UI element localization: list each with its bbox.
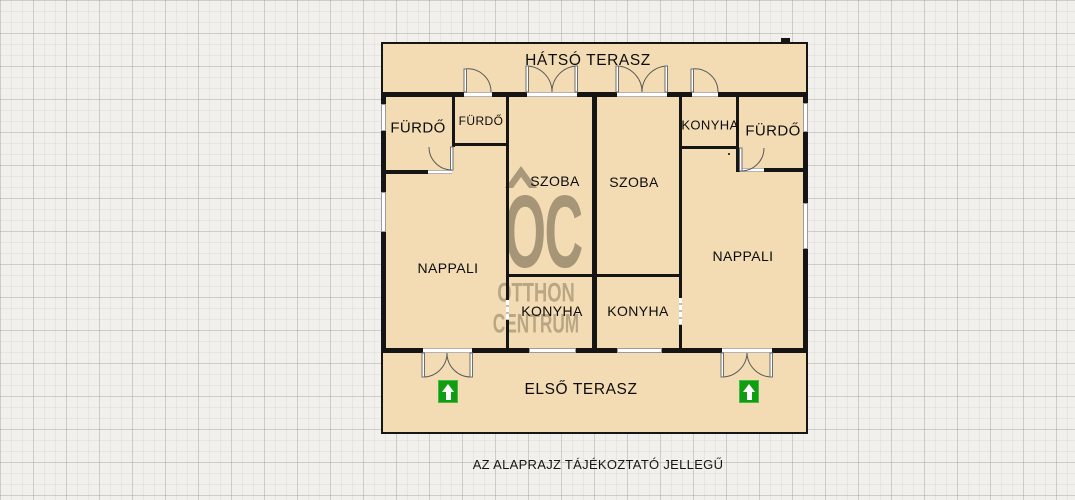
label-living-room-left: NAPPALI xyxy=(418,260,479,276)
entrance-arrow-icon-left xyxy=(438,380,458,403)
floorplan: OC OTTHON CENTRUM xyxy=(381,42,808,434)
label-kitchen-left: KONYHA xyxy=(521,303,583,319)
label-bathroom-right: FÜRDŐ xyxy=(745,123,800,140)
arrow-head xyxy=(442,384,454,392)
arrow-shaft xyxy=(446,392,451,400)
label-bathroom-left-small: FÜRDŐ xyxy=(459,114,504,128)
label-kitchen-top-right: KONYHA xyxy=(681,118,738,133)
label-living-room-right: NAPPALI xyxy=(713,248,774,264)
arrow-shaft xyxy=(747,392,752,400)
entrance-arrow-icon-right xyxy=(739,380,759,403)
label-bathroom-left: FÜRDŐ xyxy=(390,120,445,137)
door-hinge-dot xyxy=(728,153,730,155)
label-front-terrace: ELSŐ TERASZ xyxy=(524,381,637,399)
door-swings xyxy=(381,42,808,434)
arrow-head xyxy=(743,384,755,392)
label-kitchen-right: KONYHA xyxy=(607,303,669,319)
label-back-terrace: HÁTSÓ TERASZ xyxy=(525,52,651,70)
floorplan-disclaimer: AZ ALAPRAJZ TÁJÉKOZTATÓ JELLEGŰ xyxy=(473,457,724,472)
label-room-left: SZOBA xyxy=(530,173,579,189)
wall-notch-mark xyxy=(781,38,790,43)
label-room-right: SZOBA xyxy=(609,174,658,190)
floorplan-page: { "floorplan": { "labels": { "back_terra… xyxy=(0,0,1075,500)
